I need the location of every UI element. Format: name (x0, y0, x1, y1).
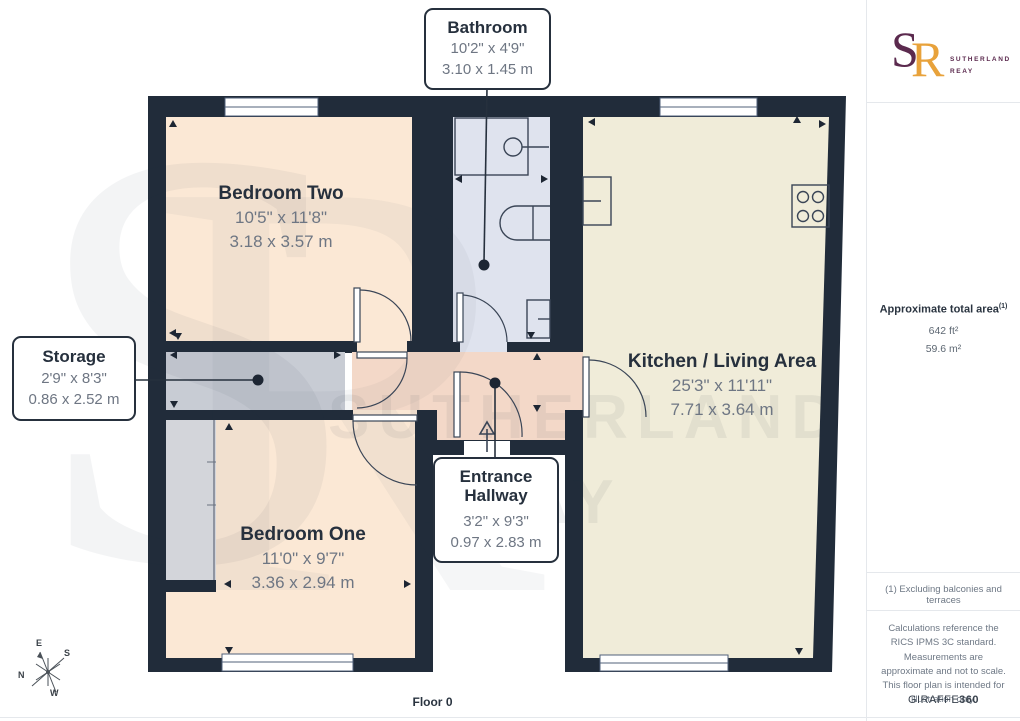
total-area-values: 642 ft² 59.6 m² (867, 323, 1020, 359)
callout-storage: Storage 2'9" x 8'3" 0.86 x 2.52 m (12, 336, 136, 421)
compass-south-label: S (64, 648, 70, 658)
sidebar-divider (867, 610, 1020, 611)
room-name: Storage (14, 347, 134, 367)
room-name-line1: Entrance (435, 467, 557, 487)
brand-name: GIRAFFE (908, 694, 959, 706)
info-sidebar: S R SUTHERLAND REAY Approximate total ar… (866, 0, 1020, 721)
room-dims-metric: 0.86 x 2.52 m (14, 389, 134, 410)
window-kitchen-top (660, 98, 757, 116)
logo-monogram-r: R (911, 30, 944, 88)
window-kitchen-bottom (600, 655, 728, 671)
total-area-title-text: Approximate total area (880, 304, 999, 316)
room-dims-metric: 7.71 x 3.64 m (592, 398, 852, 423)
total-area-block: Approximate total area(1) 642 ft² 59.6 m… (867, 303, 1020, 358)
callout-bathroom: Bathroom 10'2" x 4'9" 3.10 x 1.45 m (424, 8, 551, 90)
room-dims-metric: 3.10 x 1.45 m (426, 59, 549, 80)
total-area-title: Approximate total area(1) (867, 303, 1020, 316)
room-dims-imperial: 11'0" x 9'7" (188, 547, 418, 572)
bottom-divider (0, 717, 1020, 718)
room-dims-metric: 3.18 x 3.57 m (166, 230, 396, 255)
area-footnote: (1) Excluding balconies and terraces (867, 584, 1020, 606)
room-dims-imperial: 10'2" x 4'9" (426, 38, 549, 59)
room-name-line2: Hallway (435, 486, 557, 506)
label-bedroom-one: Bedroom One 11'0" x 9'7" 3.36 x 2.94 m (188, 523, 418, 596)
label-bedroom-two: Bedroom Two 10'5" x 11'8" 3.18 x 3.57 m (166, 182, 396, 255)
room-dims-metric: 0.97 x 2.83 m (435, 532, 557, 553)
sidebar-divider (867, 572, 1020, 573)
sidebar-divider (867, 102, 1020, 103)
callout-entrance-hallway: Entrance Hallway 3'2" x 9'3" 0.97 x 2.83… (433, 457, 559, 563)
room-name: Bathroom (426, 18, 549, 38)
floor-label: Floor 0 (0, 695, 865, 709)
room-dims-imperial: 2'9" x 8'3" (14, 368, 134, 389)
window-bedroom-two (225, 98, 318, 116)
room-name: Bedroom Two (166, 182, 396, 206)
room-dims-imperial: 10'5" x 11'8" (166, 206, 396, 231)
logo-wordmark-line1: SUTHERLAND (950, 54, 1011, 66)
floorplan-page: S R SUTHERLAND REAY (0, 0, 1020, 721)
window-bedroom-one (222, 654, 353, 671)
logo-wordmark-line2: REAY (950, 66, 1011, 78)
giraffe360-brand: GIRAFFE360 (867, 694, 1020, 706)
room-dims-imperial: 25'3" x 11'11" (592, 374, 852, 399)
room-dims-imperial: 3'2" x 9'3" (435, 511, 557, 532)
room-dims-metric: 3.36 x 2.94 m (188, 571, 418, 596)
total-area-note-ref: (1) (999, 303, 1008, 310)
room-name: Kitchen / Living Area (592, 350, 852, 374)
brand-suffix: 360 (959, 694, 979, 706)
room-name: Bedroom One (188, 523, 418, 547)
total-area-imperial: 642 ft² (867, 323, 1020, 341)
total-area-metric: 59.6 m² (867, 341, 1020, 359)
agency-logo: S R SUTHERLAND REAY (887, 26, 1017, 90)
compass-east-label: E (36, 638, 42, 648)
compass-north-label: N (18, 670, 25, 680)
label-kitchen-living: Kitchen / Living Area 25'3" x 11'11" 7.7… (592, 350, 852, 423)
logo-wordmark: SUTHERLAND REAY (950, 54, 1011, 77)
